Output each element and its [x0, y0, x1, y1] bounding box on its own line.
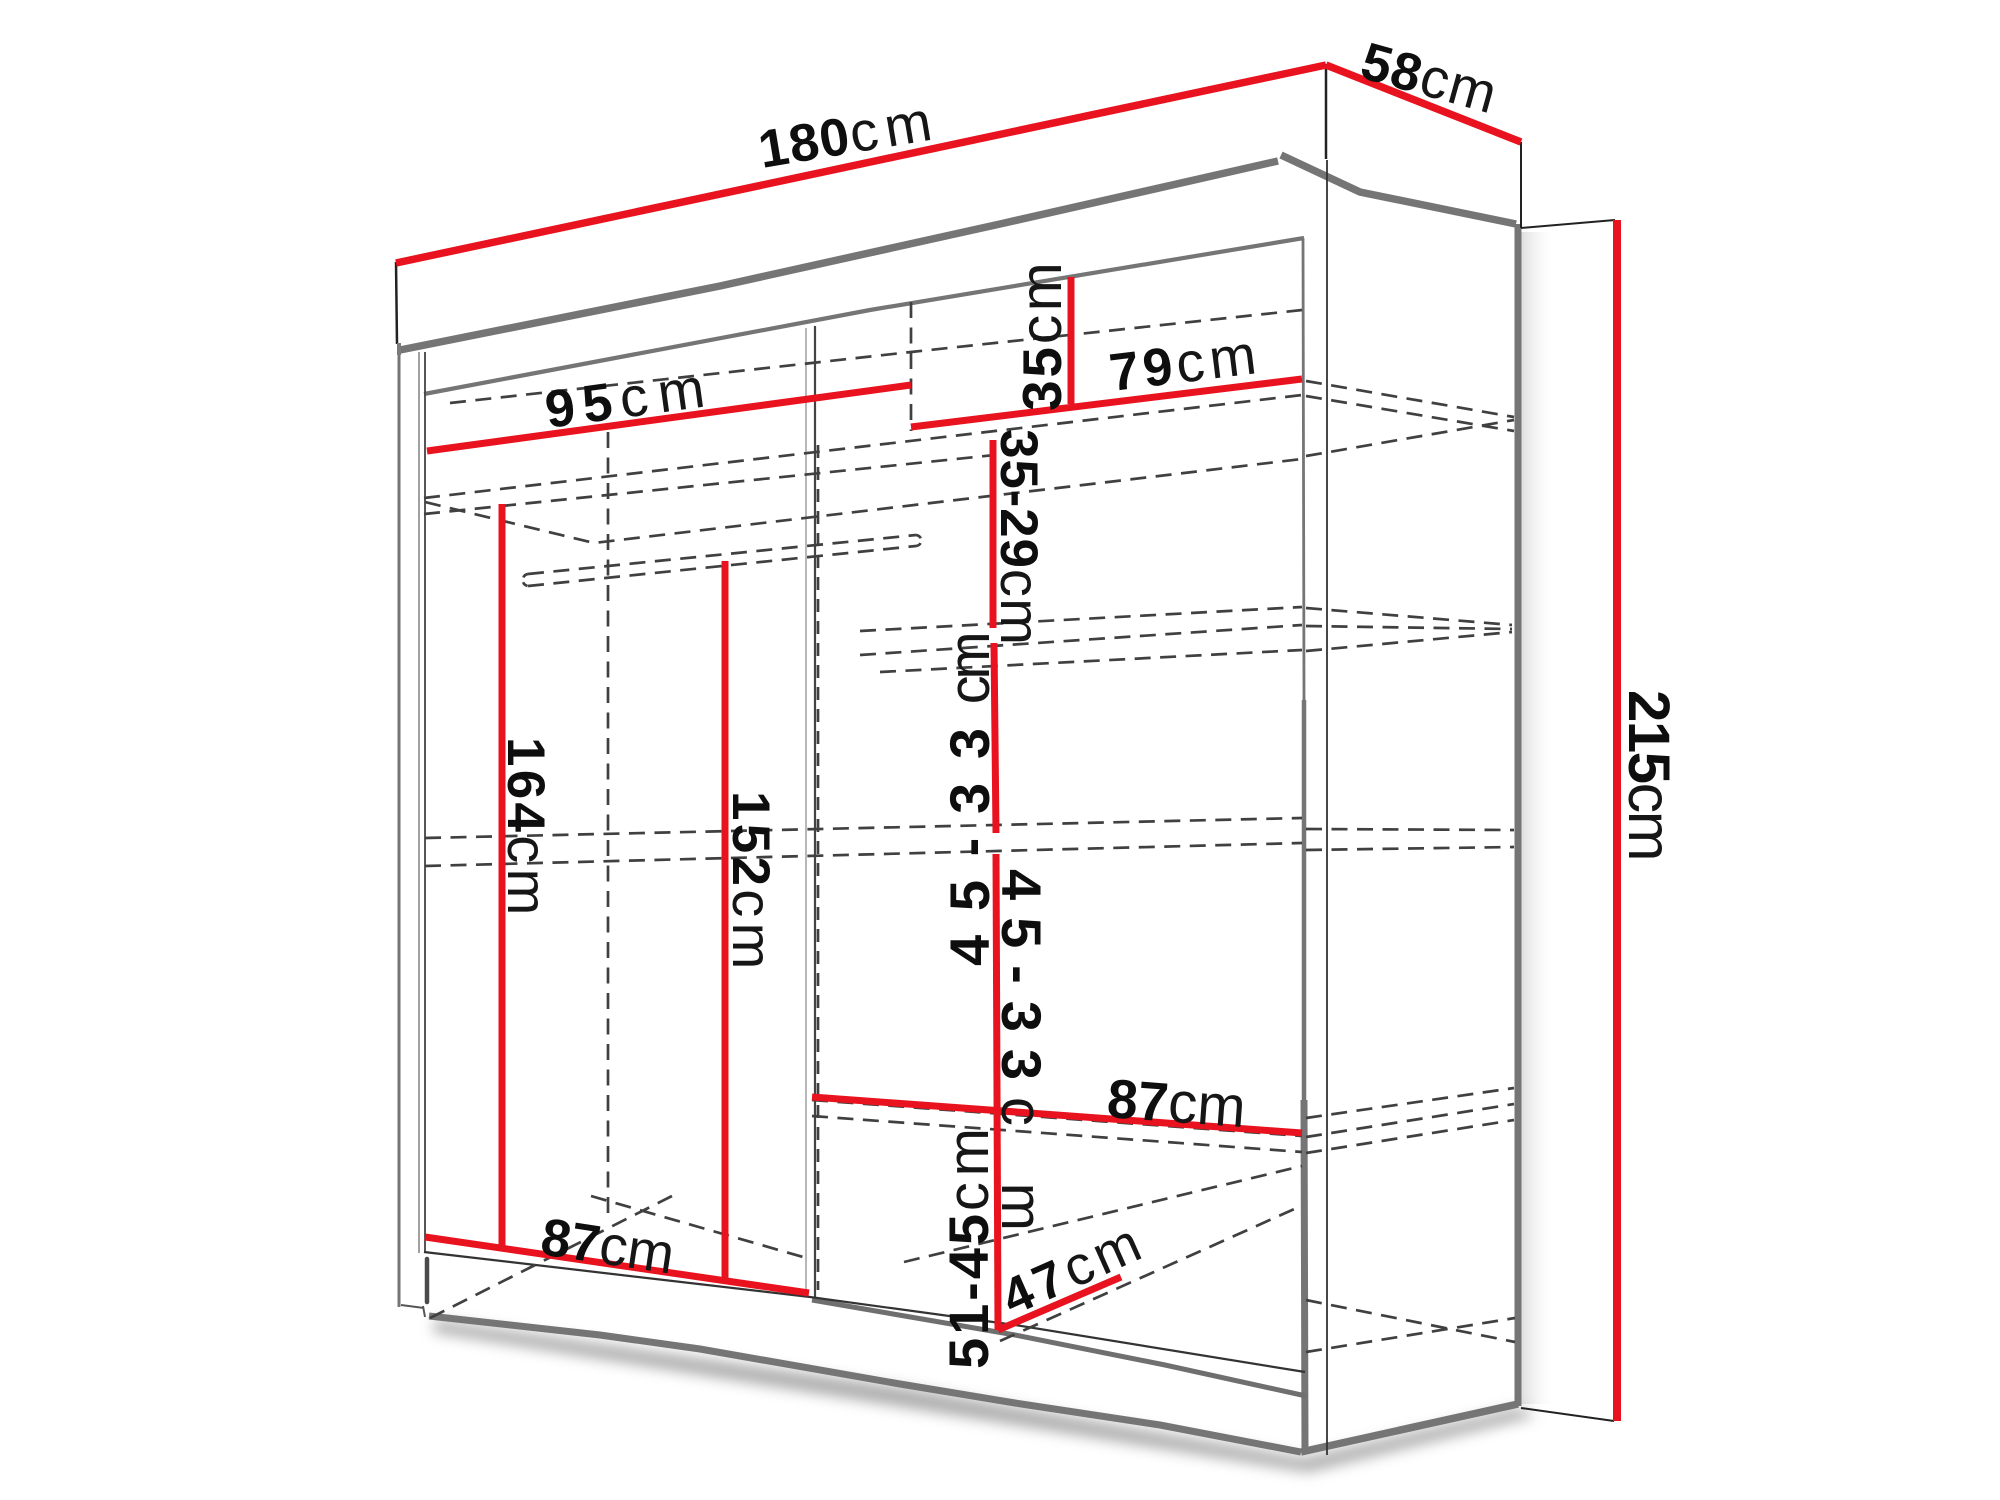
svg-text:51-45cm: 51-45cm	[936, 1128, 1001, 1369]
svg-text:152cm: 152cm	[721, 791, 784, 969]
svg-text:35-29cm: 35-29cm	[989, 429, 1052, 645]
svg-text:35cm: 35cm	[1008, 262, 1074, 411]
svg-text:164cm: 164cm	[496, 737, 559, 915]
svg-text:215cm: 215cm	[1616, 690, 1684, 862]
svg-text:87cm: 87cm	[1105, 1065, 1248, 1140]
